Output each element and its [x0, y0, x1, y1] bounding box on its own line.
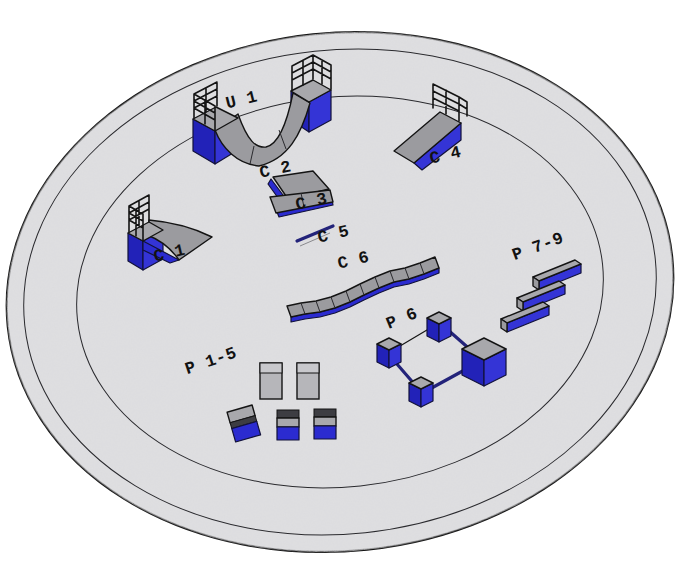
p-flat-box-2	[297, 363, 319, 399]
p-cube-2	[277, 410, 299, 440]
p6-block-small-1	[377, 338, 401, 368]
p6-block-large	[462, 338, 506, 386]
skatepark-3d-view: U 1 C 1 C 2 C 3 C 4 C 5 C 6 P 1-5 P 6 P …	[0, 0, 680, 579]
p6-block-small-3	[409, 377, 433, 407]
p6-block-small-2	[427, 312, 451, 342]
platform-disc	[0, 0, 680, 579]
p-flat-box-1	[260, 363, 282, 399]
skatepark-scene-svg	[0, 0, 680, 579]
platform-texture	[0, 0, 680, 579]
p-cube-3	[314, 409, 336, 439]
